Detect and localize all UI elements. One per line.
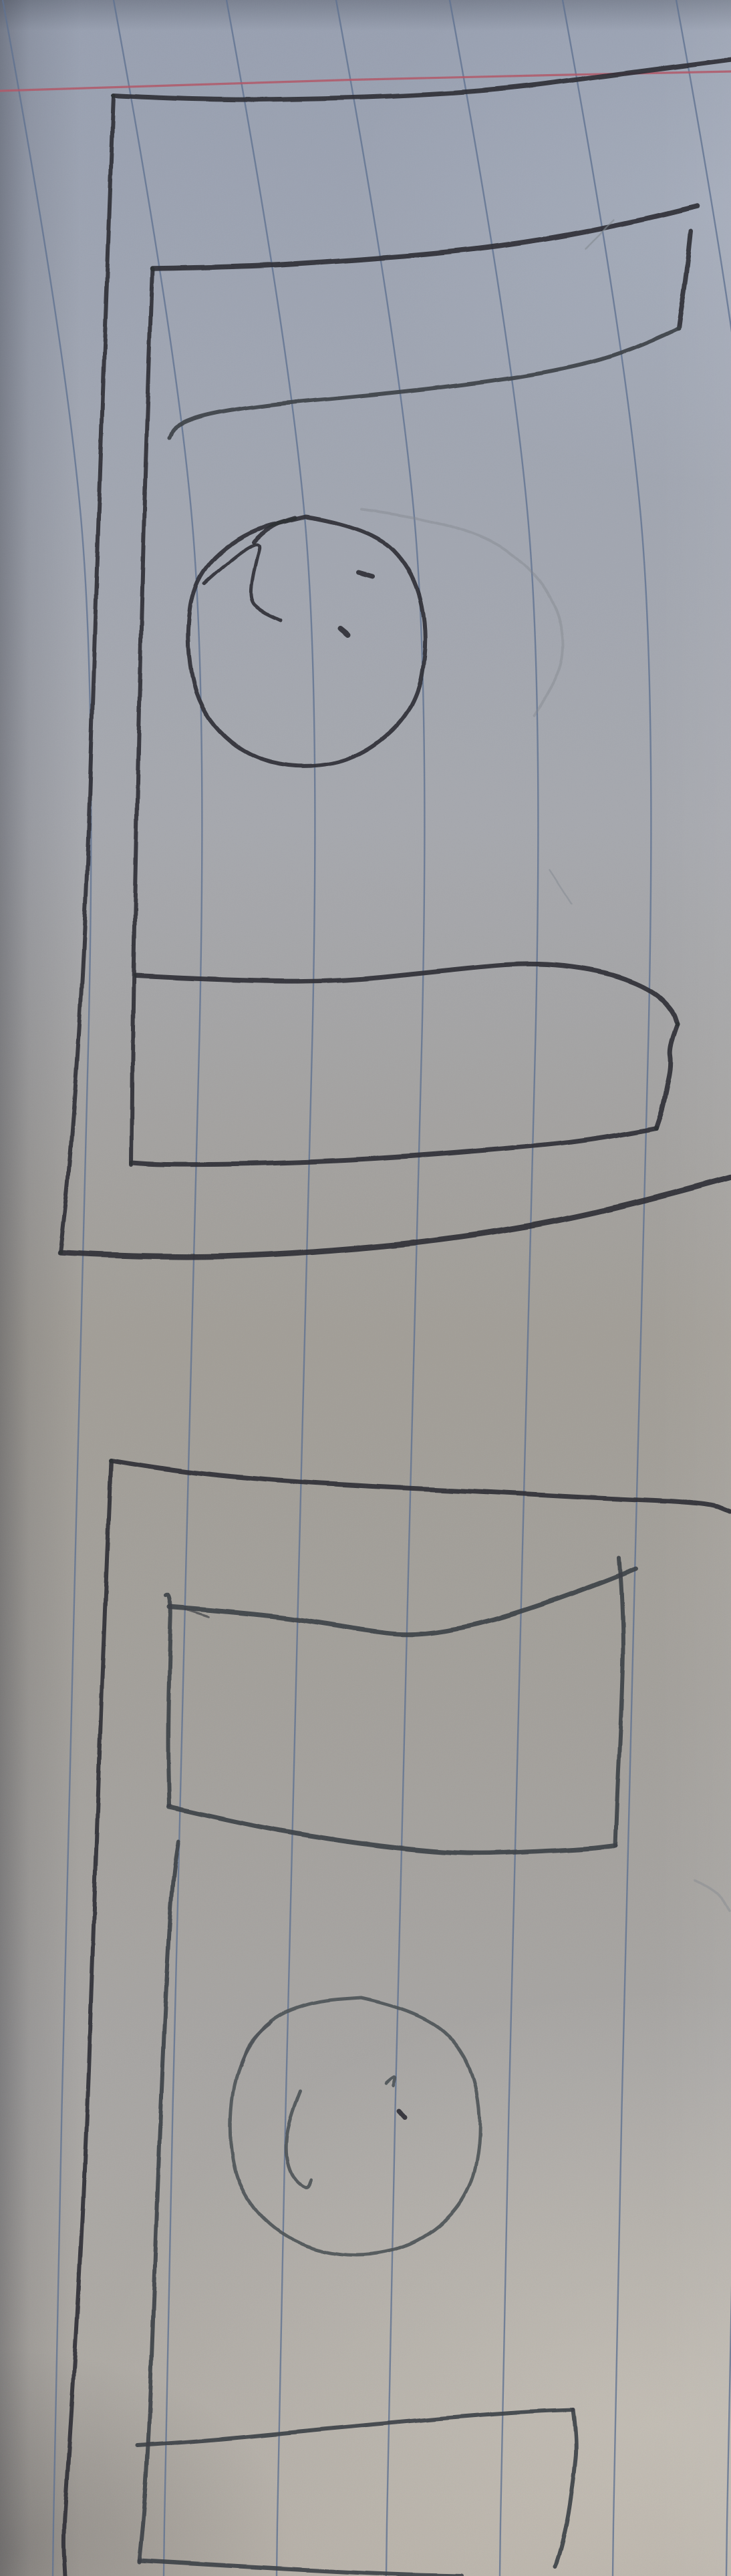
sketch-canvas xyxy=(0,0,731,2576)
notebook-sketch-photo xyxy=(0,0,731,2576)
paper-grain-overlay xyxy=(0,0,731,2576)
